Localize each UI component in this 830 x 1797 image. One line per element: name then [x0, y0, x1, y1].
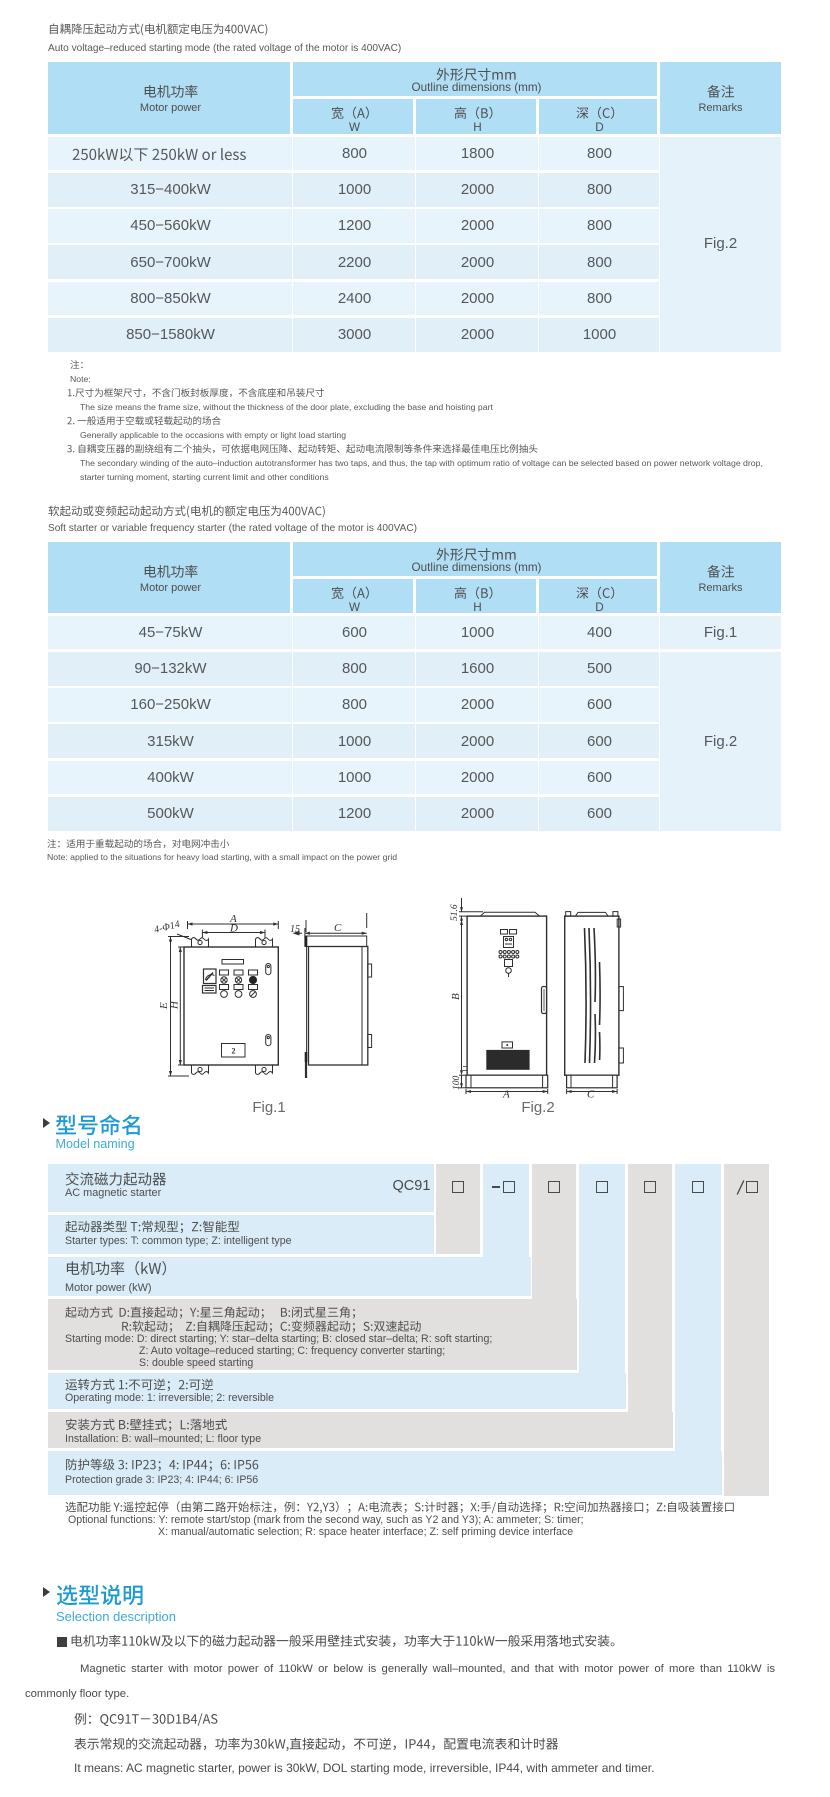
svg-text:C: C [587, 1089, 595, 1101]
svg-text:4-Φ14: 4-Φ14 [153, 919, 181, 936]
svg-text:51.6: 51.6 [450, 904, 460, 921]
svg-text:B: B [450, 993, 462, 1000]
svg-text:C: C [334, 922, 342, 934]
svg-text:A: A [502, 1089, 510, 1101]
svg-text:2: 2 [232, 1047, 236, 1056]
